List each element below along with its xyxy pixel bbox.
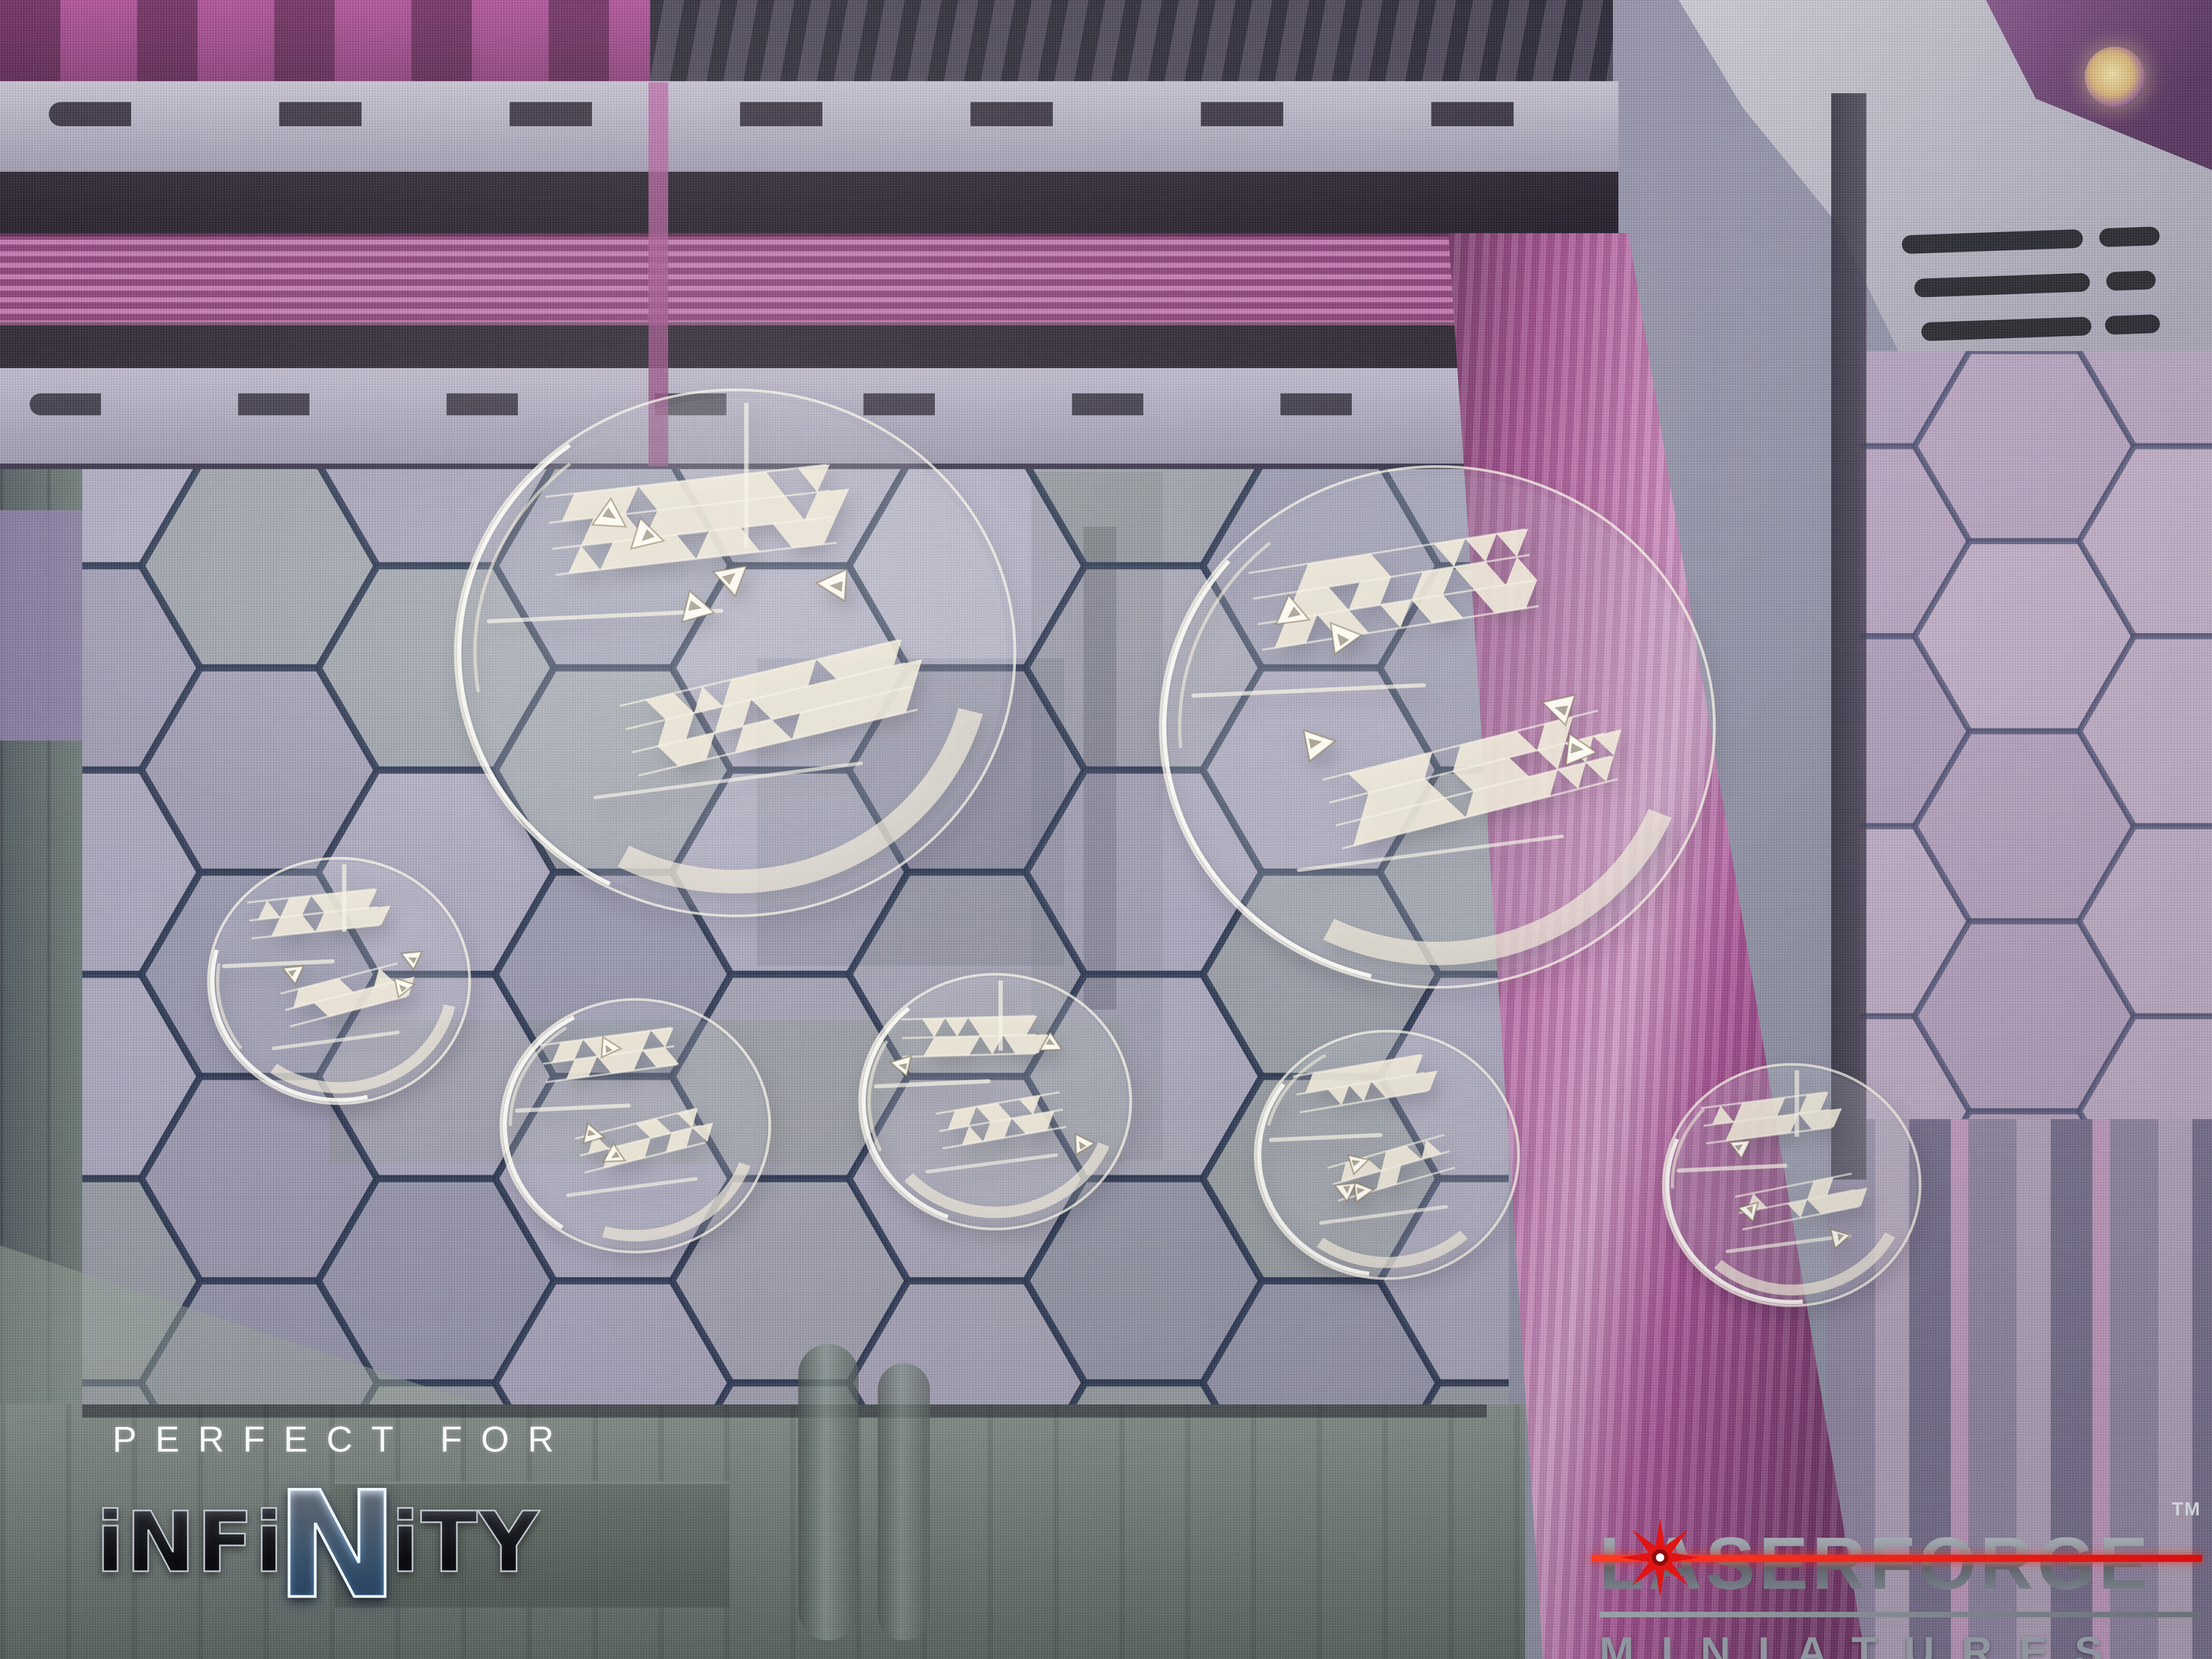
tagline: PERFECT FOR [112, 1418, 572, 1460]
laserforge-logo: LASERFORGE TM MINIATURES [1599, 1521, 2200, 1659]
laserforge-sub-text: MINIATURES [1599, 1628, 2200, 1659]
photo-vignette [0, 0, 2212, 1659]
trademark-symbol: TM [2172, 1499, 2201, 1520]
infinity-accent-letter: N [275, 1472, 399, 1620]
laser-starburst-icon [1619, 1516, 1701, 1599]
laserforge-brand-row: LASERFORGE TM [1599, 1521, 2200, 1603]
infinity-letter: Y [478, 1501, 540, 1584]
logo-divider-rule [1599, 1612, 2200, 1617]
infinity-letter: T [421, 1501, 479, 1584]
infinity-letter: i [96, 1501, 126, 1584]
infinity-logo: i N F i N i T Y [96, 1469, 540, 1616]
product-photo-scene: PERFECT FOR i N F i N i T Y LASERFORGE T… [0, 0, 2212, 1659]
infinity-letter: N [126, 1501, 196, 1584]
infinity-letter: F [196, 1501, 255, 1584]
